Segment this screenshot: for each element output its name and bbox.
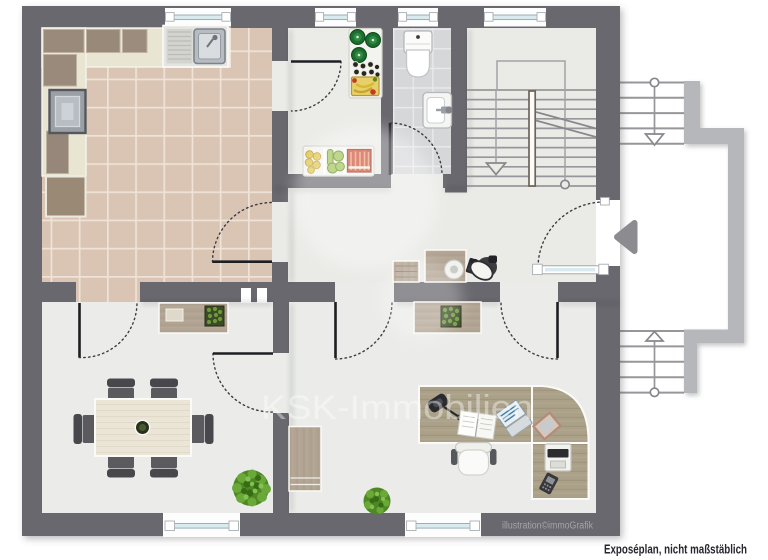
- svg-text:KSK-Immobilien: KSK-Immobilien: [261, 389, 533, 427]
- svg-text:illustration©immoGrafik: illustration©immoGrafik: [502, 521, 594, 532]
- svg-text:Exposéplan, nicht maßstäblich: Exposéplan, nicht maßstäblich: [604, 543, 747, 557]
